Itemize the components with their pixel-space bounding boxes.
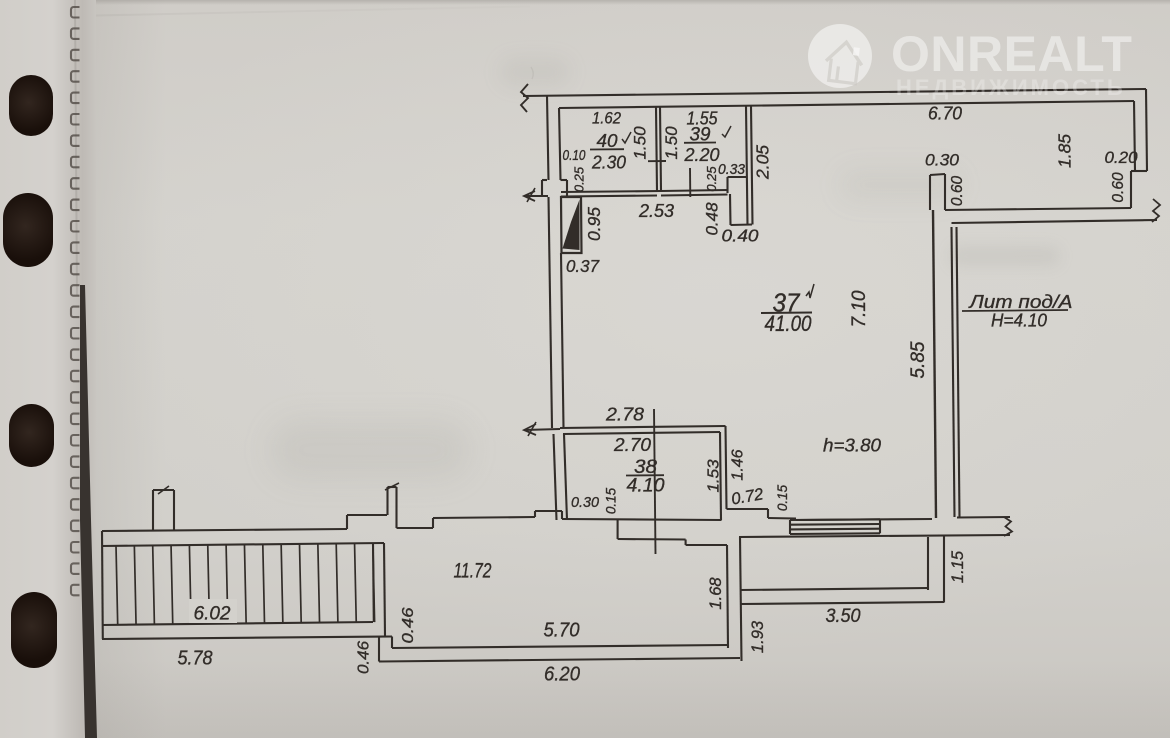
svg-text:ONREALT: ONREALT	[891, 26, 1132, 82]
svg-text:НЕДВИЖИМОСТЬ: НЕДВИЖИМОСТЬ	[896, 75, 1126, 100]
